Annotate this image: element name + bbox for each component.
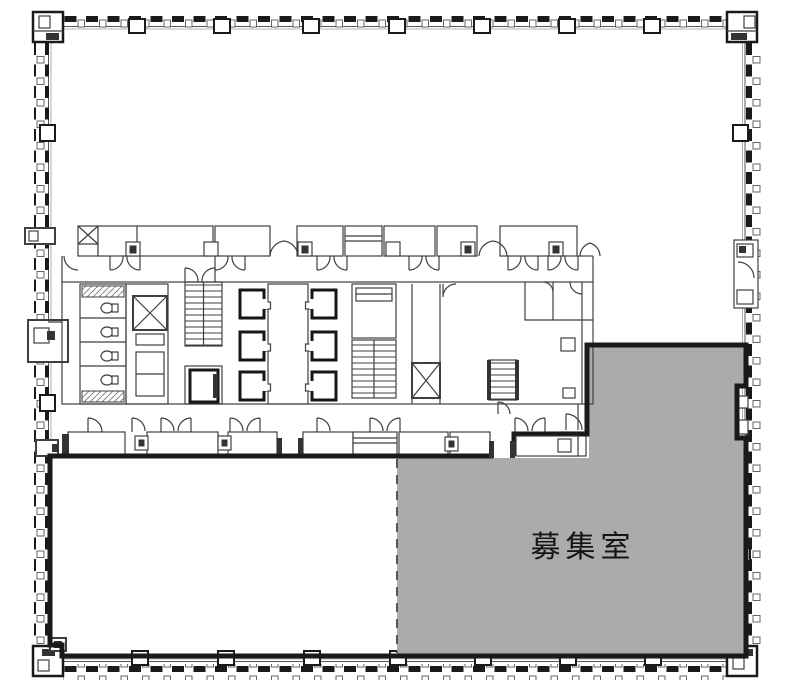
elevator-bank-west <box>240 290 268 400</box>
machine-room <box>443 282 593 414</box>
entry-jamb-right <box>510 441 515 458</box>
restrooms <box>80 284 168 404</box>
major-mullion-right-1 <box>733 125 748 141</box>
stairwell-2 <box>352 284 396 398</box>
corner-column-top-left <box>33 12 63 42</box>
corridor-doors-bottom <box>88 418 545 432</box>
toilet-fixtures <box>101 303 118 385</box>
corridor-doors-top <box>64 256 578 282</box>
stairwell-3 <box>487 360 519 414</box>
sink-counter-top <box>82 286 124 297</box>
facade-box-left-upper <box>25 228 55 244</box>
perimeter-unit-row <box>62 432 490 456</box>
elevator-hall <box>266 284 311 404</box>
elevator-bank-east <box>310 290 337 400</box>
major-mullion-left-1 <box>40 125 55 141</box>
floor-plan-page: 募集室 <box>0 0 787 698</box>
corner-column-top-right <box>727 12 757 42</box>
floor-plan-drawing <box>0 0 787 698</box>
right-wall-vestibule <box>734 240 758 308</box>
entry-jamb-left <box>489 441 494 458</box>
vacancy-room-label: 募集室 <box>528 530 638 566</box>
stairwell-1 <box>185 282 222 404</box>
building-core <box>36 226 600 456</box>
sink-counter-bottom <box>82 391 124 402</box>
major-mullion-left-2 <box>40 395 55 411</box>
core-top-rooms <box>78 226 600 256</box>
entry-unit-clip <box>558 439 571 452</box>
shaft-strip <box>412 284 440 404</box>
